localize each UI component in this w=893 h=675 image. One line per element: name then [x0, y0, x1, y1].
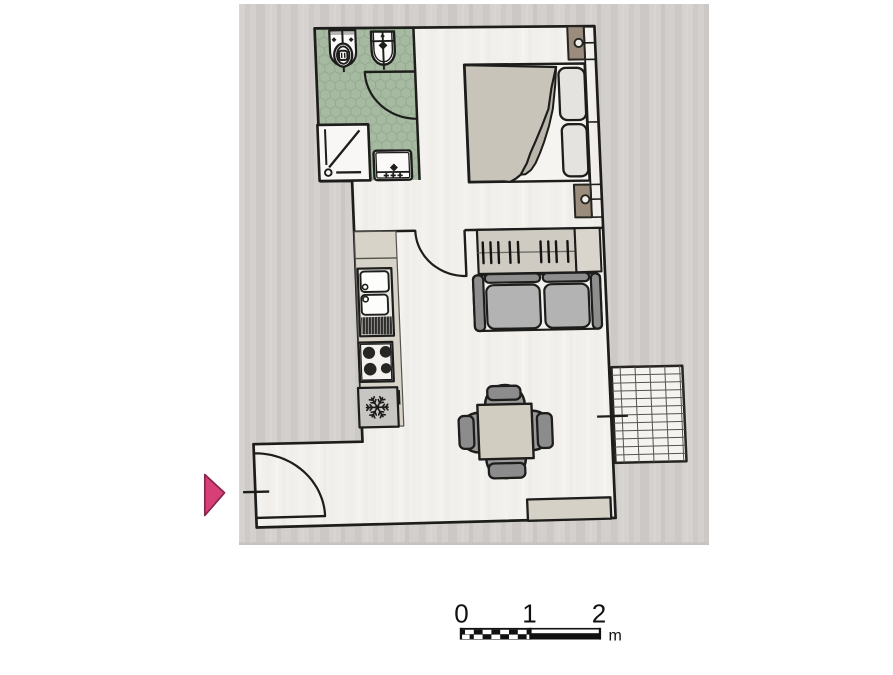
svg-text:2: 2 — [592, 599, 606, 629]
svg-text:0: 0 — [454, 599, 468, 629]
svg-text:1: 1 — [522, 599, 536, 629]
svg-text:m: m — [609, 628, 622, 645]
